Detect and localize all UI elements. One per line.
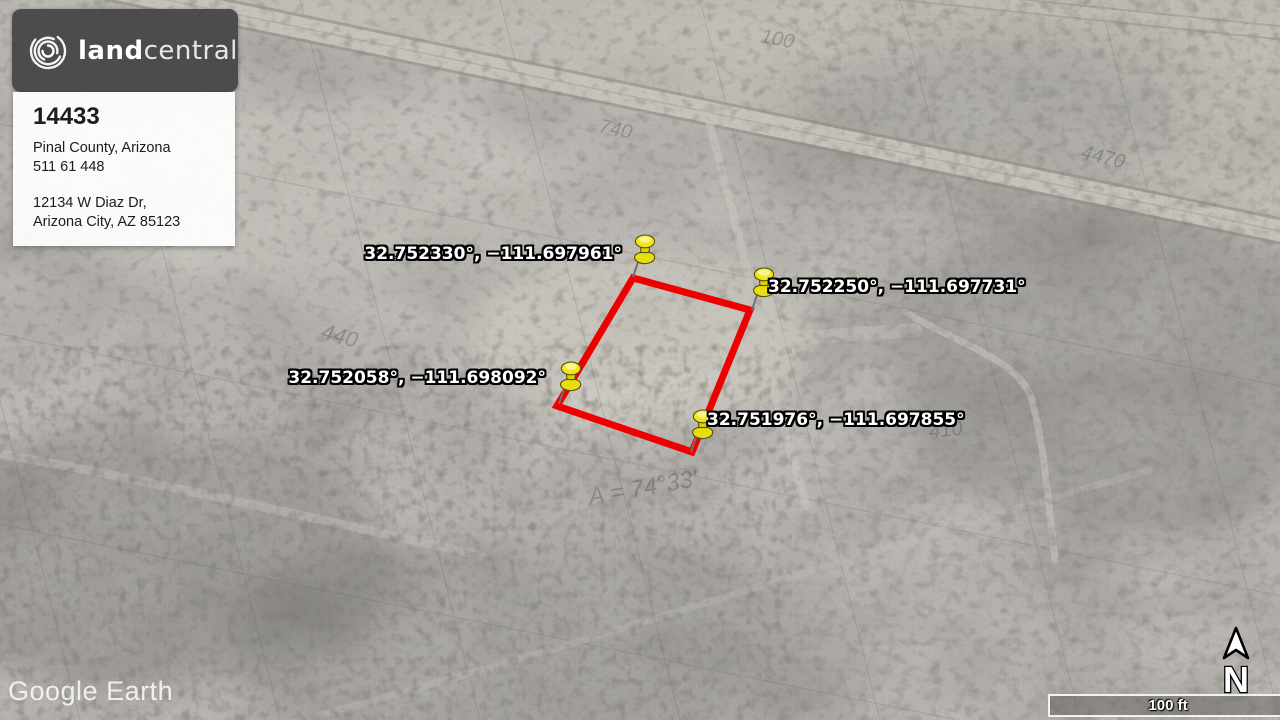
pin-coordinate-label-west: 32.752058°, −111.698092° [288,368,546,388]
brand-header: landcentral [12,9,238,92]
address-line-1: 12134 W Diaz Dr, [33,194,215,213]
map-pin-north-corner[interactable] [628,233,662,279]
listing-details: 14433 Pinal County, Arizona 511 61 448 1… [13,92,235,246]
address-line-2: Arizona City, AZ 85123 [33,213,215,232]
google-earth-watermark: Google Earth [8,676,173,707]
property-location: Pinal County, Arizona [33,139,215,158]
north-arrow[interactable]: N [1214,624,1258,696]
property-id: 14433 [33,103,215,131]
pin-coordinate-label-north: 32.752330°, −111.697961° [364,244,622,264]
map-canvas[interactable]: 440 100 740 A = 74°33' 410 4470 [0,0,1280,720]
brand-logo: landcentral [78,36,238,66]
brand-logo-central: central [144,36,238,66]
landcentral-swirl-icon [27,30,69,72]
scale-bar: 100 ft [1048,694,1280,717]
pin-coordinate-label-south: 32.751976°, −111.697855° [707,410,965,430]
brand-logo-land: land [78,36,144,66]
north-arrow-label: N [1223,659,1249,696]
pin-coordinate-label-east: 32.752250°, −111.697731° [768,277,1026,297]
scale-bar-label: 100 ft [1148,697,1187,714]
map-pin-west-corner[interactable] [554,360,588,406]
north-arrow-icon [1224,628,1248,658]
parcel-number: 511 61 448 [33,158,215,177]
listing-info-card: landcentral 14433 Pinal County, Arizona … [12,9,238,246]
